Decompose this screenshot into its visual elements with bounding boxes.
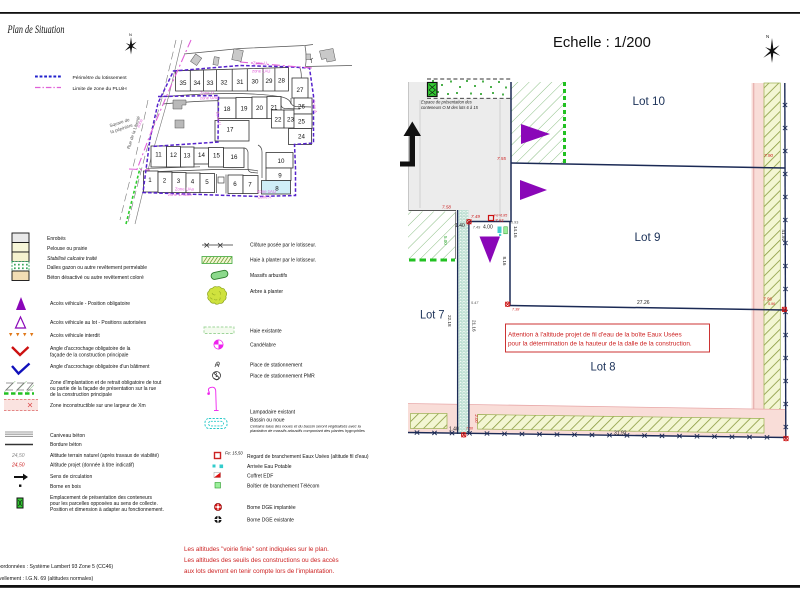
svg-text:Borne DGE implantée: Borne DGE implantée (247, 505, 296, 511)
svg-text:23: 23 (287, 117, 294, 124)
svg-text:22: 22 (275, 117, 282, 124)
svg-text:Accès véhicule - Position obli: Accès véhicule - Position obligatoire (50, 301, 130, 307)
svg-text:Béton désactivé ou autre revêt: Béton désactivé ou autre revêtement colo… (47, 275, 144, 281)
svg-text:Coordonnées : Système Lambert: Coordonnées : Système Lambert 93 Zone 5 … (0, 564, 113, 570)
svg-text:Sens de circulation: Sens de circulation (50, 474, 92, 480)
svg-text:Plan de Situation: Plan de Situation (7, 24, 65, 36)
svg-text:10: 10 (278, 158, 285, 165)
svg-text:Altitude terrain naturel (aprè: Altitude terrain naturel (après travaux … (50, 453, 159, 459)
svg-text:Les altitudes "voirie finie" s: Les altitudes "voirie finie" sont indiqu… (184, 546, 329, 553)
svg-text:5.00: 5.00 (443, 236, 448, 245)
svg-text:31: 31 (237, 79, 244, 86)
svg-text:11: 11 (155, 152, 162, 159)
svg-text:7.96: 7.96 (763, 297, 772, 302)
svg-text:Nivellement : I.G.N. 69 (altit: Nivellement : I.G.N. 69 (altitudes norma… (0, 576, 93, 582)
svg-text:Zone A: Zone A (258, 195, 271, 200)
svg-text:Lot 8: Lot 8 (591, 360, 616, 374)
svg-text:7.51: 7.51 (495, 218, 504, 223)
svg-text:Altitude projet (donnée à titr: Altitude projet (donnée à titre indicati… (50, 463, 135, 469)
svg-text:4: 4 (191, 179, 195, 186)
svg-text:21.16: 21.16 (472, 320, 477, 332)
svg-text:Fe: 15,50: Fe: 15,50 (225, 451, 243, 456)
svg-text:Limite de zone du PLUiH: Limite de zone du PLUiH (73, 86, 128, 92)
svg-text:Fe=6.85: Fe=6.85 (494, 214, 507, 218)
svg-text:Enrobés: Enrobés (47, 236, 66, 242)
svg-text:Caniveau béton: Caniveau béton (50, 433, 85, 439)
svg-text:20: 20 (256, 105, 263, 112)
svg-text:33: 33 (207, 80, 214, 87)
svg-text:29: 29 (266, 78, 273, 85)
svg-text:8: 8 (275, 186, 279, 193)
svg-text:Arbre à planter: Arbre à planter (250, 289, 283, 295)
svg-text:8.16: 8.16 (502, 257, 507, 266)
svg-text:conteneurs O.M des lots 6 à 15: conteneurs O.M des lots 6 à 15 (421, 105, 479, 110)
svg-text:Pelouse ou prairie: Pelouse ou prairie (47, 246, 88, 252)
svg-text:Bordure béton: Bordure béton (50, 442, 82, 448)
svg-text:12: 12 (170, 152, 177, 159)
svg-text:de la construction principale: de la construction principale (50, 392, 112, 398)
svg-text:18: 18 (224, 106, 231, 113)
svg-text:aux lots devront en tenir comp: aux lots devront en tenir compte lors de… (184, 568, 335, 575)
svg-text:34: 34 (194, 80, 201, 87)
svg-text:7.49: 7.49 (473, 226, 481, 230)
svg-text:7: 7 (248, 182, 252, 189)
svg-text:24: 24 (298, 134, 305, 141)
svg-text:1.40: 1.40 (449, 427, 459, 433)
svg-text:7.90: 7.90 (764, 153, 773, 158)
svg-text:N: N (129, 32, 132, 37)
svg-text:zone UAa: zone UAa (200, 95, 219, 101)
svg-text:Dalles gazon ou autre revêteme: Dalles gazon ou autre revêtement perméab… (47, 265, 147, 271)
svg-text:22.18: 22.18 (447, 315, 452, 327)
svg-text:Les altitudes des seuils des c: Les altitudes des seuils des constructio… (184, 557, 339, 564)
svg-text:Angle d'accrochage obligatoire: Angle d'accrochage obligatoire de la (50, 346, 131, 352)
svg-text:Attention à l'altitude projet: Attention à l'altitude projet de fil d'e… (508, 332, 682, 339)
svg-text:41.92: 41.92 (781, 230, 786, 242)
svg-text:13: 13 (184, 153, 191, 160)
svg-text:14.16: 14.16 (513, 226, 518, 238)
svg-text:Lot 10: Lot 10 (633, 94, 666, 108)
svg-text:Arrivée Eau Potable: Arrivée Eau Potable (247, 464, 292, 470)
svg-text:Candélabre: Candélabre (250, 343, 276, 349)
svg-text:1: 1 (148, 177, 152, 184)
svg-text:Zone 1AU: Zone 1AU (257, 189, 276, 194)
svg-text:15: 15 (213, 153, 220, 160)
svg-text:19: 19 (241, 106, 248, 113)
svg-text:27: 27 (297, 87, 304, 94)
svg-text:1.40: 1.40 (455, 223, 465, 229)
svg-text:Zone U: Zone U (253, 61, 267, 66)
svg-text:Borne en bois: Borne en bois (50, 484, 81, 490)
svg-text:9: 9 (278, 173, 282, 180)
svg-text:4.00: 4.00 (483, 225, 493, 231)
svg-text:14: 14 (198, 152, 205, 159)
svg-text:5: 5 (205, 179, 209, 186)
svg-text:Echelle : 1/200: Echelle : 1/200 (553, 35, 651, 51)
svg-text:32: 32 (221, 80, 228, 87)
svg-text:35: 35 (180, 80, 187, 87)
svg-text:Massifs arbustifs: Massifs arbustifs (250, 273, 288, 279)
svg-text:2.00: 2.00 (474, 414, 479, 424)
svg-text:24,50: 24,50 (11, 463, 25, 469)
svg-text:24,50: 24,50 (11, 453, 25, 459)
svg-text:2: 2 (163, 178, 167, 185)
svg-text:Lot 7: Lot 7 (420, 308, 445, 322)
svg-text:zone 1AUDb: zone 1AUDb (168, 192, 192, 197)
svg-text:0.93: 0.93 (511, 221, 518, 225)
svg-text:Accès véhicule interdit: Accès véhicule interdit (50, 333, 100, 339)
svg-text:Périmètre du lotissement: Périmètre du lotissement (73, 75, 128, 81)
svg-text:N: N (766, 34, 769, 39)
svg-text:5.96: 5.96 (768, 302, 775, 306)
svg-text:31.92: 31.92 (614, 431, 627, 437)
svg-text:Zone inconstructible sur une l: Zone inconstructible sur une largeur de … (50, 403, 146, 409)
svg-text:Lampadaire existant: Lampadaire existant (250, 410, 296, 416)
svg-text:28: 28 (278, 78, 285, 85)
svg-text:plantation de massifs arbustif: plantation de massifs arbustifs comporta… (249, 428, 365, 433)
svg-text:Place de stationnement PMR: Place de stationnement PMR (250, 374, 315, 380)
svg-text:7.60: 7.60 (466, 427, 473, 431)
svg-text:7.55: 7.55 (497, 156, 506, 161)
svg-text:25: 25 (298, 119, 305, 126)
svg-text:7.58: 7.58 (442, 205, 451, 210)
svg-text:5.47: 5.47 (471, 301, 479, 305)
svg-text:Stabilisé calcaire traité: Stabilisé calcaire traité (47, 256, 97, 262)
svg-text:30: 30 (252, 79, 259, 86)
svg-text:16: 16 (231, 154, 238, 161)
svg-text:pour la détermination de la ha: pour la détermination de la hauteur de l… (508, 341, 692, 348)
svg-text:27.26: 27.26 (637, 300, 650, 306)
svg-text:Borne DGE existante: Borne DGE existante (247, 518, 294, 524)
svg-text:17: 17 (227, 127, 234, 134)
svg-text:Regard de branchement Eaux Usé: Regard de branchement Eaux Usées (altitu… (247, 454, 369, 460)
svg-text:Accès véhicule au lot - Posit: Accès véhicule au lot - Positions autori… (50, 320, 147, 326)
svg-text:Haie à planter par le lotisseu: Haie à planter par le lotisseur. (250, 258, 316, 264)
svg-text:Haie existante: Haie existante (250, 329, 282, 335)
svg-text:Place de stationnement: Place de stationnement (250, 363, 303, 369)
svg-text:6: 6 (233, 181, 237, 188)
svg-text:Clôture posée par le lotisseur: Clôture posée par le lotisseur. (250, 243, 316, 249)
svg-text:7.49: 7.49 (471, 214, 480, 219)
svg-text:Angle d'accrochage obligatoire: Angle d'accrochage obligatoire d'un bâti… (50, 364, 150, 370)
svg-text:Lot 9: Lot 9 (635, 230, 661, 244)
svg-text:Coffret EDF: Coffret EDF (247, 474, 273, 480)
svg-text:Espace de présentation des: Espace de présentation des (421, 100, 472, 105)
svg-text:Position et dimension à adapte: Position et dimension à adapter au fonct… (50, 507, 164, 513)
svg-text:Zone UAa: Zone UAa (175, 187, 195, 192)
svg-text:zone 1AU: zone 1AU (252, 69, 270, 74)
svg-text:3: 3 (177, 178, 181, 185)
svg-text:façade de la construction prin: façade de la construction principale (50, 353, 129, 359)
svg-text:Boîtier de branchement Télécom: Boîtier de branchement Télécom (247, 484, 319, 490)
svg-text:7.38: 7.38 (512, 308, 520, 312)
